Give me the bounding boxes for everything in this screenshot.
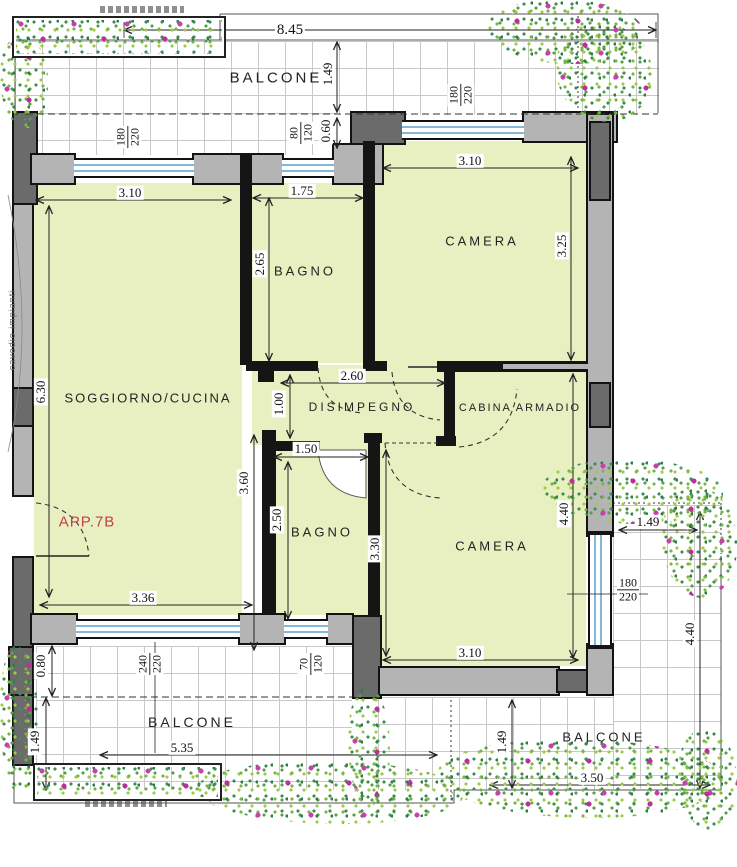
dim-camera2-width: 3.10 [457, 646, 484, 660]
dim-top-total: 8.45 [275, 22, 305, 39]
window-size-bagno1-top: 80 120 [287, 122, 314, 144]
dim-balcone-se-top-width: 1.49 [635, 515, 662, 529]
dim-balcone-se-depth: 1.49 [495, 729, 509, 756]
label-camera2: CAMERA [455, 539, 529, 554]
dim-balcone-se-height: 4.40 [683, 621, 697, 648]
dim-balcone-top-step: 0.60 [319, 118, 333, 145]
window-size-camera1-top: 180 220 [447, 84, 474, 106]
dim-bagno1-width: 1.75 [289, 184, 316, 198]
dim-camera2-height-left: 3.30 [368, 536, 382, 563]
label-soggiorno: SOGGIORNO/CUCINA [64, 391, 231, 406]
label-apartment-id: APP.7B [59, 514, 116, 531]
dim-disimpegno-height: 1.00 [272, 391, 286, 418]
dim-bagno1-height: 2.65 [253, 251, 267, 278]
planter-bottom [33, 763, 222, 801]
planter-top [12, 16, 226, 58]
dim-balcone-top-depth: 1.49 [321, 61, 335, 88]
dim-disimpegno-width: 2.60 [339, 369, 366, 383]
dim-camera2-height-right: 4.40 [557, 501, 571, 528]
dim-balcone-sw-step: 0.80 [34, 653, 48, 680]
window-size-camera2-right: 180 220 [617, 576, 639, 603]
dim-bagno2-width: 1.50 [293, 442, 320, 456]
dim-balcone-sw-depth: 1.49 [28, 729, 42, 756]
dim-soggiorno-width: 3.10 [117, 186, 144, 200]
label-cabina: CABINA ARMADIO [459, 402, 581, 414]
label-camera1: CAMERA [445, 234, 519, 249]
label-bagno1: BAGNO [274, 264, 336, 279]
label-balcone-top: BALCONE [230, 70, 323, 87]
floor-plan: BALCONE SOGGIORNO/CUCINA BAGNO CAMERA DI… [0, 0, 737, 867]
label-balcone-se: BALCONE [562, 730, 645, 745]
window-size-bagno2-bottom: 70 120 [297, 653, 324, 675]
label-disimpegno: DISIMPEGNO [309, 400, 416, 414]
dim-camera1-width: 3.10 [457, 154, 484, 168]
dim-soggiorno-lower-width: 3.36 [130, 591, 157, 605]
extension-lines [124, 22, 656, 753]
label-balcone-sw: BALCONE [148, 714, 236, 730]
dim-soggiorno-height: 6.30 [34, 379, 48, 406]
dim-bagno2-height: 2.50 [270, 507, 284, 534]
label-bagno2: BAGNO [291, 525, 353, 540]
window-size-soggiorno-bottom: 240 220 [136, 653, 163, 675]
dim-soggiorno-lower-height: 3.60 [237, 470, 251, 497]
dim-balcone-se-width: 3.50 [579, 771, 606, 785]
dim-balcone-sw-width: 5.35 [169, 741, 196, 755]
label-cavedio-impianti: cavedio impianti [7, 290, 17, 371]
dim-camera1-height: 3.25 [555, 233, 569, 260]
window-size-soggiorno-top: 180 220 [114, 126, 141, 148]
